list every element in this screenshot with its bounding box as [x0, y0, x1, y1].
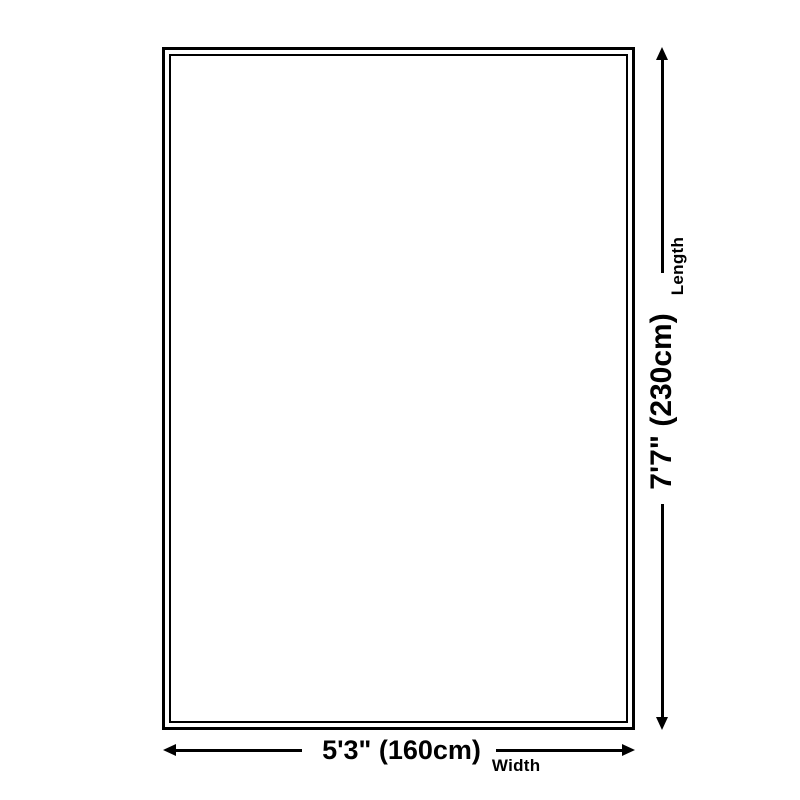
length-dimension-line-top: Length — [661, 60, 664, 273]
dimension-diagram: 5'3" (160cm) Width 7'7" (230cm) Length — [0, 0, 800, 800]
width-dimension-line-left — [176, 749, 302, 752]
rug-inner-border — [169, 54, 628, 723]
arrowhead-right-icon — [622, 744, 635, 756]
width-axis-label: Width — [492, 757, 541, 774]
arrowhead-up-icon — [656, 47, 668, 60]
arrowhead-left-icon — [163, 744, 176, 756]
width-dimension-line-right: Width — [496, 749, 622, 752]
arrowhead-down-icon — [656, 717, 668, 730]
rug-outline — [162, 47, 635, 730]
length-value: 7'7" (230cm) — [647, 313, 677, 489]
length-axis-label: Length — [669, 237, 686, 295]
width-value: 5'3" (160cm) — [322, 737, 481, 764]
length-dimension-line-bottom — [661, 504, 664, 717]
width-dimension: 5'3" (160cm) Width — [163, 730, 635, 770]
length-dimension: 7'7" (230cm) Length — [642, 47, 682, 730]
